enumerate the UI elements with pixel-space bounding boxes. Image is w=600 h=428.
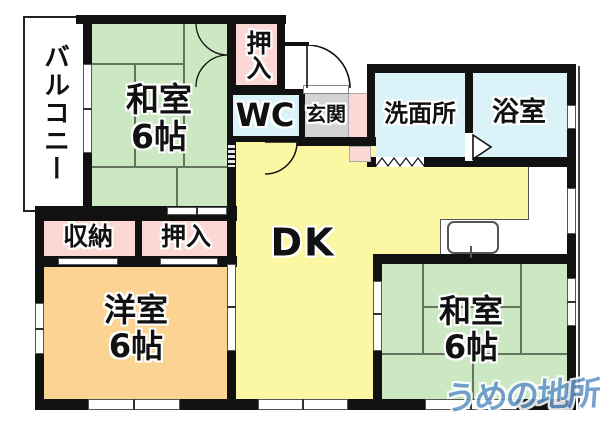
window-tick xyxy=(373,313,382,315)
label-yoshitsu: 洋室 6帖 xyxy=(104,293,168,365)
tatami-line xyxy=(92,63,183,65)
kitchen-sink xyxy=(447,221,499,254)
label-shuno: 収納 xyxy=(63,223,113,251)
tatami-line xyxy=(176,168,178,208)
room-size: 6帖 xyxy=(104,329,168,365)
window-tick xyxy=(302,399,304,410)
window-tick xyxy=(35,328,44,330)
genkan-step-cabinet xyxy=(349,146,371,162)
kitchen-faucet xyxy=(470,246,472,258)
label-washitsu-top-left: 和室 6帖 xyxy=(126,82,192,156)
label-washitsu-bottom-right: 和室 6帖 xyxy=(439,294,503,366)
label-wc: WC xyxy=(236,98,295,134)
bath-door-triangle xyxy=(471,134,494,161)
tatami-line xyxy=(422,262,424,354)
label-dk: DK xyxy=(271,222,336,265)
wall-oshiire-right xyxy=(277,18,285,90)
room-name: 和室 xyxy=(439,294,503,330)
wall-genkan-bottom xyxy=(297,137,376,146)
fusuma-shuno xyxy=(58,258,118,265)
wall-shuno-divider xyxy=(135,215,142,261)
label-oshiire-mid: 押入 xyxy=(161,223,211,251)
counter-edge xyxy=(528,163,529,220)
fusuma-oshiire-mid xyxy=(160,258,218,265)
room-size: 6帖 xyxy=(439,330,503,366)
wall-hatch-strip xyxy=(228,143,235,167)
wall-top xyxy=(76,15,286,24)
label-genkan: 玄関 xyxy=(306,103,346,125)
door-washitsu-br-dk xyxy=(373,281,382,351)
tatami-line xyxy=(520,262,522,354)
label-senmenjo: 洗面所 xyxy=(384,101,456,128)
floor-plan: バルコニー 和室 6帖 押入 WC 玄関 洗面所 浴室 DK 収納 押入 洋室 … xyxy=(0,0,600,428)
tatami-line xyxy=(92,166,227,168)
label-oshiire-top: 押入 xyxy=(243,30,271,80)
agency-watermark: うめの地所 xyxy=(442,366,600,419)
closet-double-door-arcs xyxy=(194,21,231,90)
wall-washroom-left xyxy=(367,64,375,145)
accordion-door xyxy=(376,157,424,167)
window-tick xyxy=(227,306,236,308)
label-yokushitsu: 浴室 xyxy=(492,98,546,128)
wall-counter-bottom xyxy=(373,254,575,264)
counter-edge xyxy=(440,219,529,220)
room-name: 洋室 xyxy=(104,293,168,329)
window-tick xyxy=(133,399,135,410)
window-bath-right xyxy=(567,105,576,129)
label-balcony: バルコニー xyxy=(39,43,68,183)
window-tick xyxy=(83,108,92,110)
window-tick xyxy=(196,207,198,215)
room-size: 6帖 xyxy=(126,119,192,156)
window-tick xyxy=(567,301,576,303)
genkan-shoe-cabinet xyxy=(348,93,368,138)
room-name: 和室 xyxy=(126,82,192,119)
counter-edge xyxy=(440,219,441,257)
wall-right-outline xyxy=(578,66,580,409)
wc-door-arc xyxy=(263,140,300,177)
window-kitchen-right xyxy=(567,188,576,234)
entrance-door-arc xyxy=(305,45,352,91)
